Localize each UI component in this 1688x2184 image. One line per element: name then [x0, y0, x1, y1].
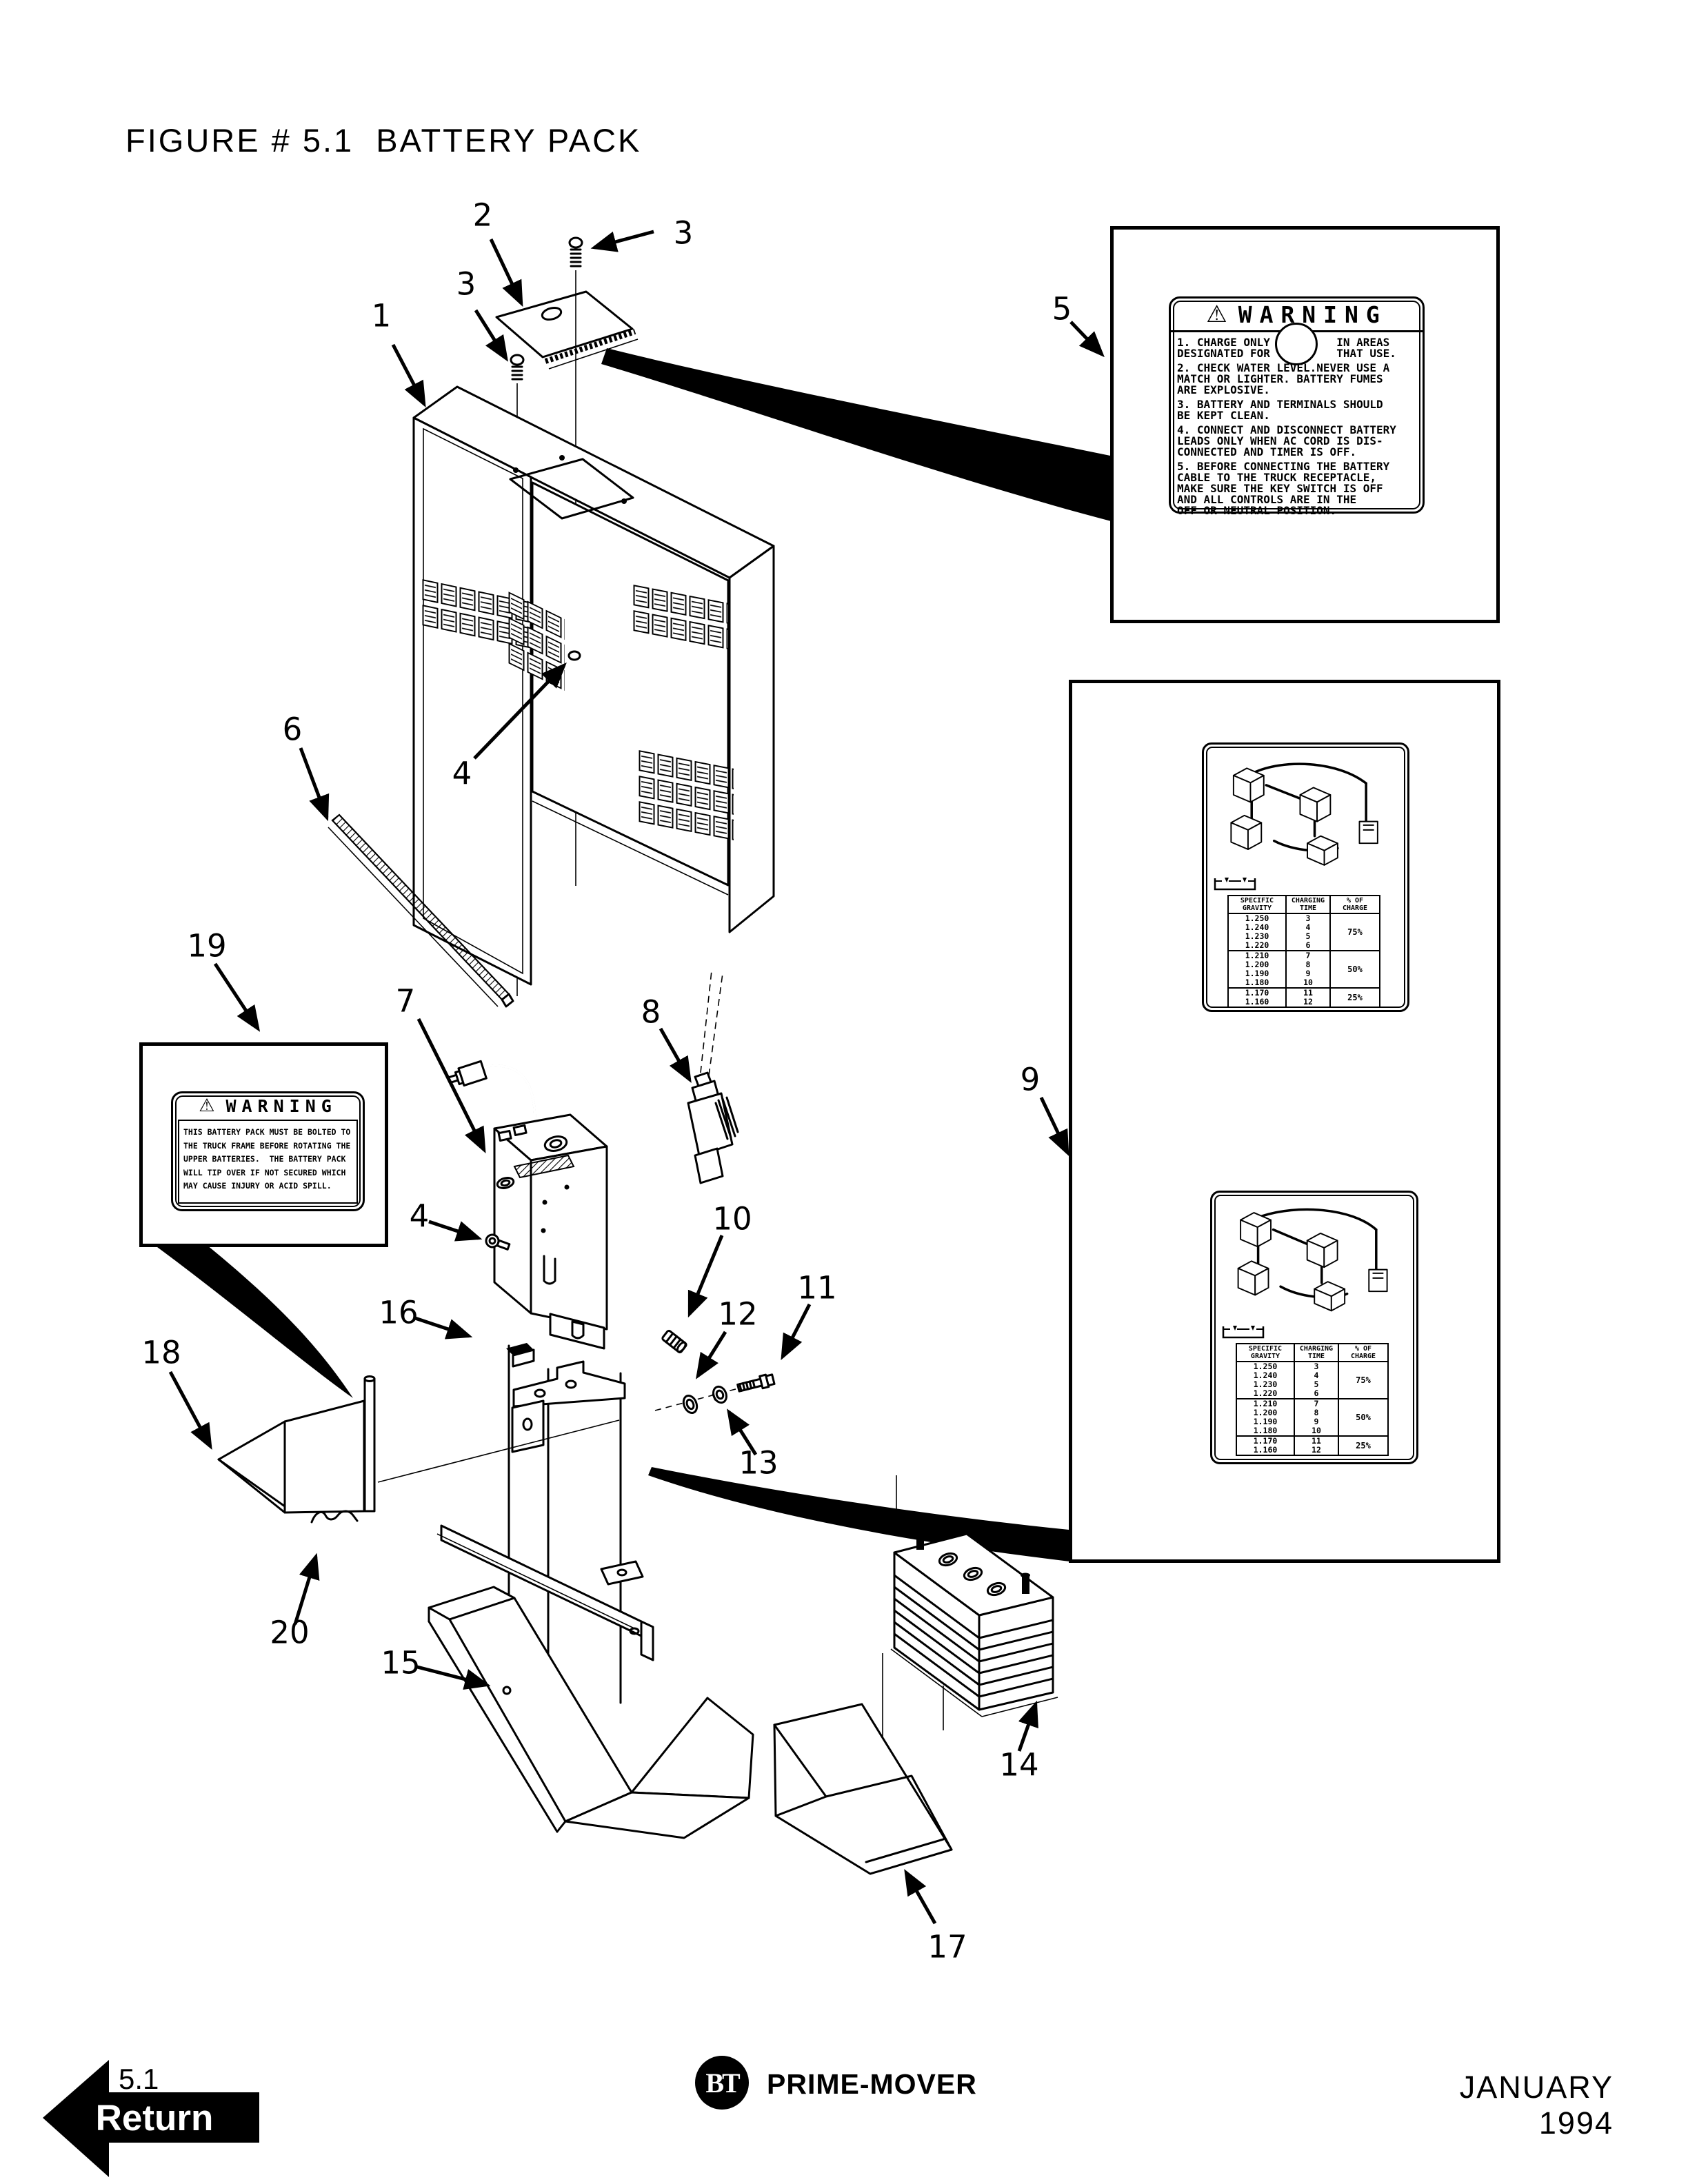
- hairpin-clip: [312, 1511, 357, 1522]
- callout-19: 19: [187, 928, 226, 964]
- charge-cell: 75%: [1338, 1362, 1388, 1399]
- charging-table: SPECIFIC GRAVITYCHARGING TIME% OF CHARGE…: [1227, 895, 1380, 1008]
- warning-line: WILL TIP OVER IF NOT SECURED WHICH: [183, 1166, 352, 1180]
- fill-level-icon: [1209, 874, 1263, 895]
- bt-logo-initials: BT: [705, 2067, 738, 2099]
- warning-header-text: WARNING: [225, 1096, 336, 1116]
- charging-table-header: SPECIFIC GRAVITY: [1228, 896, 1286, 913]
- callout-5: 5: [1052, 291, 1072, 327]
- charge-cell: 75%: [1330, 913, 1380, 951]
- charging-labels-panel: SPECIFIC GRAVITYCHARGING TIME% OF CHARGE…: [1069, 680, 1500, 1563]
- bt-logo: BT: [695, 2056, 749, 2110]
- callout-7: 7: [396, 983, 416, 1020]
- gravity-cell: 1.220: [1228, 941, 1286, 951]
- manual-page: FIGURE # 5.1 BATTERY PACK: [0, 0, 1688, 2184]
- warning-triangle-icon: ⚠: [1206, 301, 1227, 328]
- warning-item: 2. CHECK WATER LEVEL.NEVER USE A MATCH O…: [1177, 363, 1416, 396]
- charging-table-header: % OF CHARGE: [1330, 896, 1380, 913]
- fill-level-icon: [1218, 1322, 1272, 1343]
- gravity-cell: 1.160: [1236, 1446, 1294, 1455]
- time-cell: 10: [1286, 978, 1330, 988]
- callout-13: 13: [738, 1445, 778, 1482]
- callout-8: 8: [641, 994, 661, 1031]
- gravity-cell: 1.250: [1228, 913, 1286, 923]
- charging-label: SPECIFIC GRAVITYCHARGING TIME% OF CHARGE…: [1210, 1191, 1418, 1464]
- callout-17: 17: [927, 1929, 967, 1965]
- warning-triangle-icon: ⚠: [199, 1095, 214, 1116]
- gravity-cell: 1.170: [1236, 1436, 1294, 1446]
- warning-header-text: WARNING: [1238, 301, 1387, 328]
- publication-date: JANUARY 1994: [1376, 2070, 1614, 2141]
- time-cell: 6: [1294, 1389, 1338, 1399]
- time-cell: 12: [1294, 1446, 1338, 1455]
- callout-1: 1: [372, 298, 392, 334]
- battery-wiring-diagram: [1218, 1198, 1414, 1322]
- callout-10: 10: [712, 1201, 752, 1237]
- time-cell: 7: [1294, 1399, 1338, 1408]
- time-cell: 7: [1286, 951, 1330, 960]
- time-cell: 6: [1286, 941, 1330, 951]
- gravity-cell: 1.210: [1236, 1399, 1294, 1408]
- time-cell: 3: [1286, 913, 1330, 923]
- gravity-cell: 1.220: [1236, 1389, 1294, 1399]
- callout-18: 18: [141, 1335, 181, 1371]
- time-cell: 3: [1294, 1362, 1338, 1371]
- warning-line: THIS BATTERY PACK MUST BE BOLTED TO: [183, 1126, 352, 1140]
- warning-line: THE TRUCK FRAME BEFORE ROTATING THE: [183, 1140, 352, 1153]
- charge-cell: 25%: [1330, 988, 1380, 1007]
- label-mounting-hole: [1275, 323, 1318, 365]
- battery-wiring-diagram: [1209, 750, 1405, 874]
- charge-cell: 25%: [1338, 1436, 1388, 1455]
- battery-tray: [774, 1704, 952, 1874]
- warning-line: UPPER BATTERIES. THE BATTERY PACK: [183, 1153, 352, 1166]
- page-title: FIGURE # 5.1 BATTERY PACK: [125, 121, 641, 159]
- charging-table: SPECIFIC GRAVITYCHARGING TIME% OF CHARGE…: [1236, 1343, 1389, 1456]
- callout-14: 14: [999, 1747, 1038, 1783]
- callout-11: 11: [797, 1270, 836, 1306]
- callout-16: 16: [379, 1295, 418, 1331]
- charging-table-header: CHARGING TIME: [1294, 1344, 1338, 1362]
- tipover-warning-panel: ⚠ WARNING THIS BATTERY PACK MUST BE BOLT…: [139, 1042, 388, 1247]
- gravity-cell: 1.180: [1228, 978, 1286, 988]
- battery-connector: [688, 971, 738, 1183]
- time-cell: 10: [1294, 1426, 1338, 1436]
- callout-4: 4: [410, 1198, 430, 1235]
- warning-item: 3. BATTERY AND TERMINALS SHOULD BE KEPT …: [1177, 399, 1416, 421]
- charger: [447, 1061, 607, 1348]
- warning-item: 5. BEFORE CONNECTING THE BATTERY CABLE T…: [1177, 461, 1416, 516]
- warning-panel: ⚠ WARNING 1. CHARGE ONLY IN AREAS DESIGN…: [1110, 226, 1500, 623]
- warning-item: 4. CONNECT AND DISCONNECT BATTERY LEADS …: [1177, 425, 1416, 458]
- gravity-cell: 1.250: [1236, 1362, 1294, 1371]
- callout-20: 20: [270, 1615, 309, 1651]
- stand-base: [429, 1587, 753, 1838]
- battery-cover: [414, 387, 774, 984]
- warning-line: MAY CAUSE INJURY OR ACID SPILL.: [183, 1180, 352, 1193]
- callout-2: 2: [473, 197, 493, 234]
- time-cell: 12: [1286, 998, 1330, 1007]
- page-number: 5.1: [119, 2063, 159, 2096]
- gravity-cell: 1.210: [1228, 951, 1286, 960]
- charge-cell: 50%: [1330, 951, 1380, 988]
- charging-table-header: % OF CHARGE: [1338, 1344, 1388, 1362]
- return-button-label[interactable]: Return: [72, 2097, 237, 2139]
- callout-9: 9: [1021, 1062, 1041, 1098]
- brand-name: PRIME-MOVER: [767, 2068, 977, 2101]
- charge-cell: 50%: [1338, 1399, 1388, 1436]
- callout-3: 3: [456, 266, 476, 303]
- warning-header: ⚠ WARNING: [173, 1093, 363, 1118]
- charging-table-header: CHARGING TIME: [1286, 896, 1330, 913]
- warning-body: THIS BATTERY PACK MUST BE BOLTED TOTHE T…: [178, 1120, 358, 1204]
- callout-6: 6: [283, 711, 303, 748]
- charging-table-header: SPECIFIC GRAVITY: [1236, 1344, 1294, 1362]
- callout-3: 3: [674, 215, 694, 252]
- side-bracket: [219, 1377, 374, 1523]
- gravity-cell: 1.160: [1228, 998, 1286, 1007]
- gravity-cell: 1.180: [1236, 1426, 1294, 1436]
- callout-15: 15: [381, 1645, 420, 1681]
- gravity-cell: 1.170: [1228, 988, 1286, 998]
- time-cell: 11: [1294, 1436, 1338, 1446]
- tipover-warning-label: ⚠ WARNING THIS BATTERY PACK MUST BE BOLT…: [171, 1091, 365, 1211]
- callout-12: 12: [718, 1296, 757, 1333]
- charging-label: SPECIFIC GRAVITYCHARGING TIME% OF CHARGE…: [1202, 742, 1409, 1012]
- time-cell: 11: [1286, 988, 1330, 998]
- callout-4: 4: [452, 756, 472, 792]
